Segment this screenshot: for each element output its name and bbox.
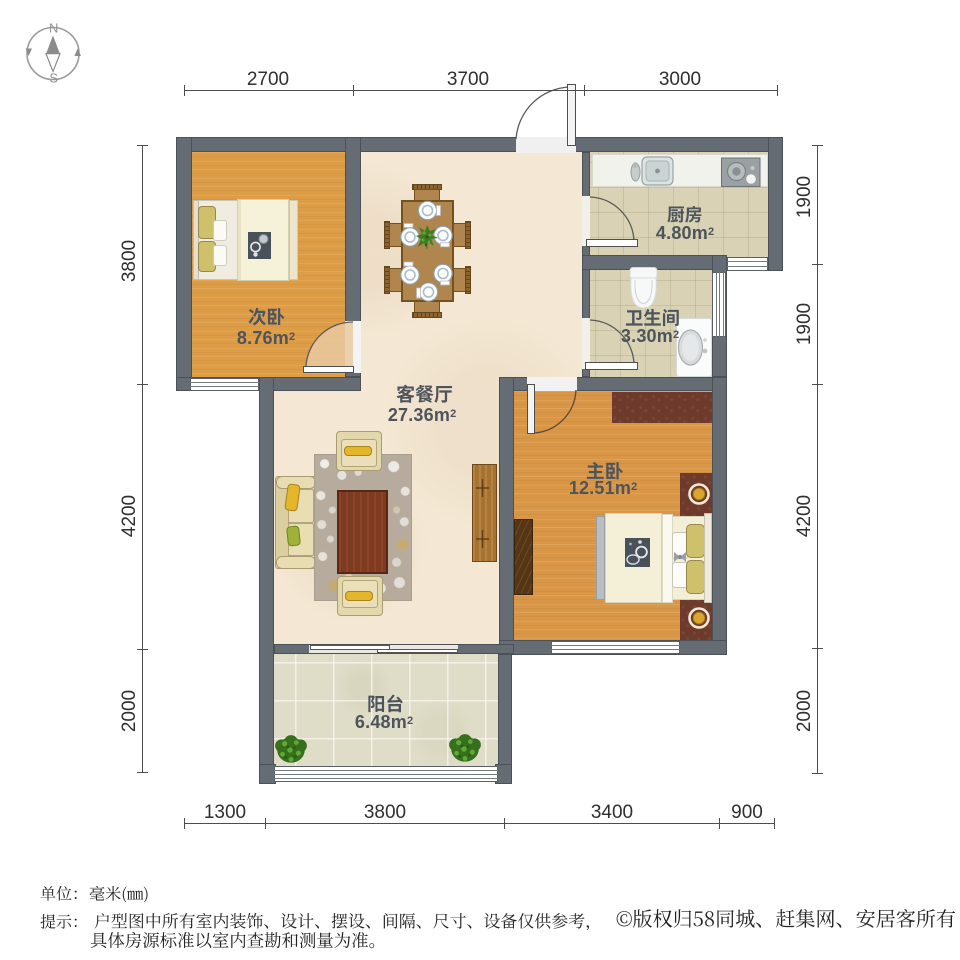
svg-text:S: S xyxy=(49,71,58,86)
svg-text:N: N xyxy=(49,20,58,35)
